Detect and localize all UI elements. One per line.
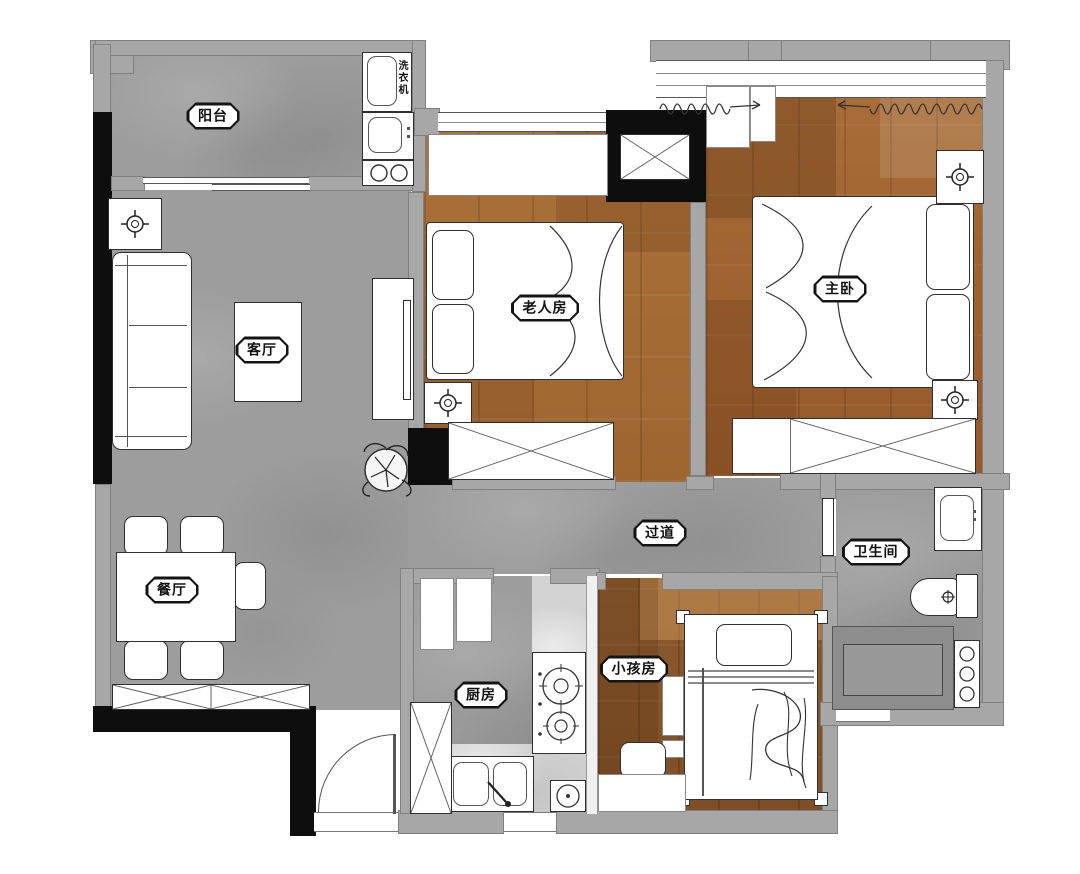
wall-segment-light <box>586 576 598 814</box>
shaft-hatch <box>621 135 689 179</box>
entry-threshold <box>314 812 398 832</box>
fridge <box>410 702 452 814</box>
room-label-kitchen: 厨房 <box>455 682 508 709</box>
pipe-shaft-box <box>620 134 690 180</box>
plant-icon <box>356 438 416 500</box>
shower-area <box>832 626 954 710</box>
hallway-floor <box>408 478 822 574</box>
shoe-cabinet <box>112 684 310 710</box>
pillow <box>432 230 474 300</box>
balcony-sink <box>362 112 414 160</box>
sofa-armrest-line <box>115 436 187 437</box>
pillow <box>926 204 970 290</box>
floor-plan: 洗衣机 <box>0 0 1080 874</box>
window-line <box>438 122 606 123</box>
room-label-elder: 老人房 <box>511 295 579 322</box>
shoe-cabinet-hatch <box>113 685 309 709</box>
downlight-icon <box>433 388 463 418</box>
kids-cabinet <box>598 774 686 812</box>
faucet-dot <box>407 127 410 130</box>
wardrobe-hatch <box>733 419 975 473</box>
kitchen-cabinet <box>420 578 454 650</box>
master-wardrobe <box>732 418 976 474</box>
shower-tray <box>843 644 943 696</box>
dining-chair <box>124 640 168 680</box>
room-label-text: 主卧 <box>816 278 864 300</box>
wall-segment <box>93 44 111 116</box>
blanket-squiggle <box>744 684 818 798</box>
room-label-hallway: 过道 <box>634 520 687 547</box>
faucet-icon <box>484 776 518 810</box>
sink-basin <box>368 117 402 153</box>
elder-room-window <box>438 112 606 132</box>
wall-segment <box>820 473 836 499</box>
window-line <box>656 73 986 74</box>
room-label-text: 过道 <box>636 522 684 544</box>
curtain-icon <box>658 96 764 118</box>
pillow <box>926 294 970 380</box>
dining-chair <box>180 516 224 556</box>
faucet-dot <box>973 510 976 513</box>
dining-chair <box>180 640 224 680</box>
pillow <box>716 624 792 666</box>
room-label-bathroom: 卫生间 <box>842 539 910 566</box>
wall-segment-black <box>93 112 112 484</box>
room-label-balcony: 阳台 <box>187 103 240 130</box>
room-label-text: 餐厅 <box>148 579 196 601</box>
shelf-circles-icon <box>954 640 980 708</box>
curtain-icon <box>834 96 984 118</box>
floor-drain-icon <box>550 780 586 812</box>
downlight-icon <box>945 162 975 192</box>
wall-segment <box>690 202 706 476</box>
wall-segment <box>111 176 145 191</box>
wall-segment <box>686 476 714 490</box>
balcony-sliding-door-leaf <box>212 184 310 191</box>
pillow <box>432 304 474 374</box>
faucet-dot <box>407 135 410 138</box>
kitchen-door-threshold <box>504 812 556 832</box>
room-label-dining: 餐厅 <box>146 577 199 604</box>
entry-door-leaf <box>393 734 396 814</box>
kitchen-cabinet <box>456 578 492 642</box>
downlight-icon <box>120 209 150 239</box>
tv-screen <box>403 300 411 400</box>
sofa <box>112 252 192 450</box>
washing-machine-label: 洗衣机 <box>394 60 409 96</box>
room-label-text: 卫生间 <box>845 541 908 563</box>
bathroom-washbasin <box>934 487 982 551</box>
balcony-sliding-door-leaf <box>143 177 309 184</box>
room-label-text: 阳台 <box>189 105 237 127</box>
room-label-master: 主卧 <box>814 276 867 303</box>
room-label-text: 厨房 <box>457 684 505 706</box>
sofa-backrest-line <box>127 255 128 447</box>
stove-burners-icon <box>534 654 584 752</box>
entry-door-arc <box>318 734 396 812</box>
cabinet-knobs-icon <box>362 160 414 186</box>
kids-side-cabinet <box>662 676 684 736</box>
bathroom-door-leaf <box>822 498 834 556</box>
dining-chair <box>234 562 266 610</box>
toilet-flush-icon <box>940 589 956 605</box>
room-label-text: 老人房 <box>514 297 577 319</box>
sofa-cushion-line <box>129 387 187 388</box>
room-label-text: 小孩房 <box>603 658 666 680</box>
wall-segment <box>556 810 838 834</box>
basin <box>940 495 974 541</box>
faucet-dot <box>973 518 976 521</box>
elder-room-closet <box>428 134 608 196</box>
washer-drum <box>367 56 397 106</box>
room-label-text: 客厅 <box>238 339 286 361</box>
wall-segment <box>662 572 838 590</box>
wall-segment <box>414 108 440 136</box>
elder-wardrobe <box>448 422 614 480</box>
sofa-armrest-line <box>115 265 187 266</box>
wardrobe-hatch <box>449 423 613 479</box>
wall-segment <box>95 484 111 710</box>
fridge-hatch <box>411 703 451 813</box>
downlight-icon <box>940 385 970 415</box>
wall-segment-black <box>290 706 316 836</box>
sofa-cushion-line <box>129 325 187 326</box>
kids-nightstand <box>620 742 666 778</box>
room-label-living: 客厅 <box>236 337 289 364</box>
dining-chair <box>124 516 168 556</box>
wall-segment <box>982 60 1004 726</box>
toilet-tank <box>956 574 978 618</box>
room-label-kids: 小孩房 <box>600 656 668 683</box>
